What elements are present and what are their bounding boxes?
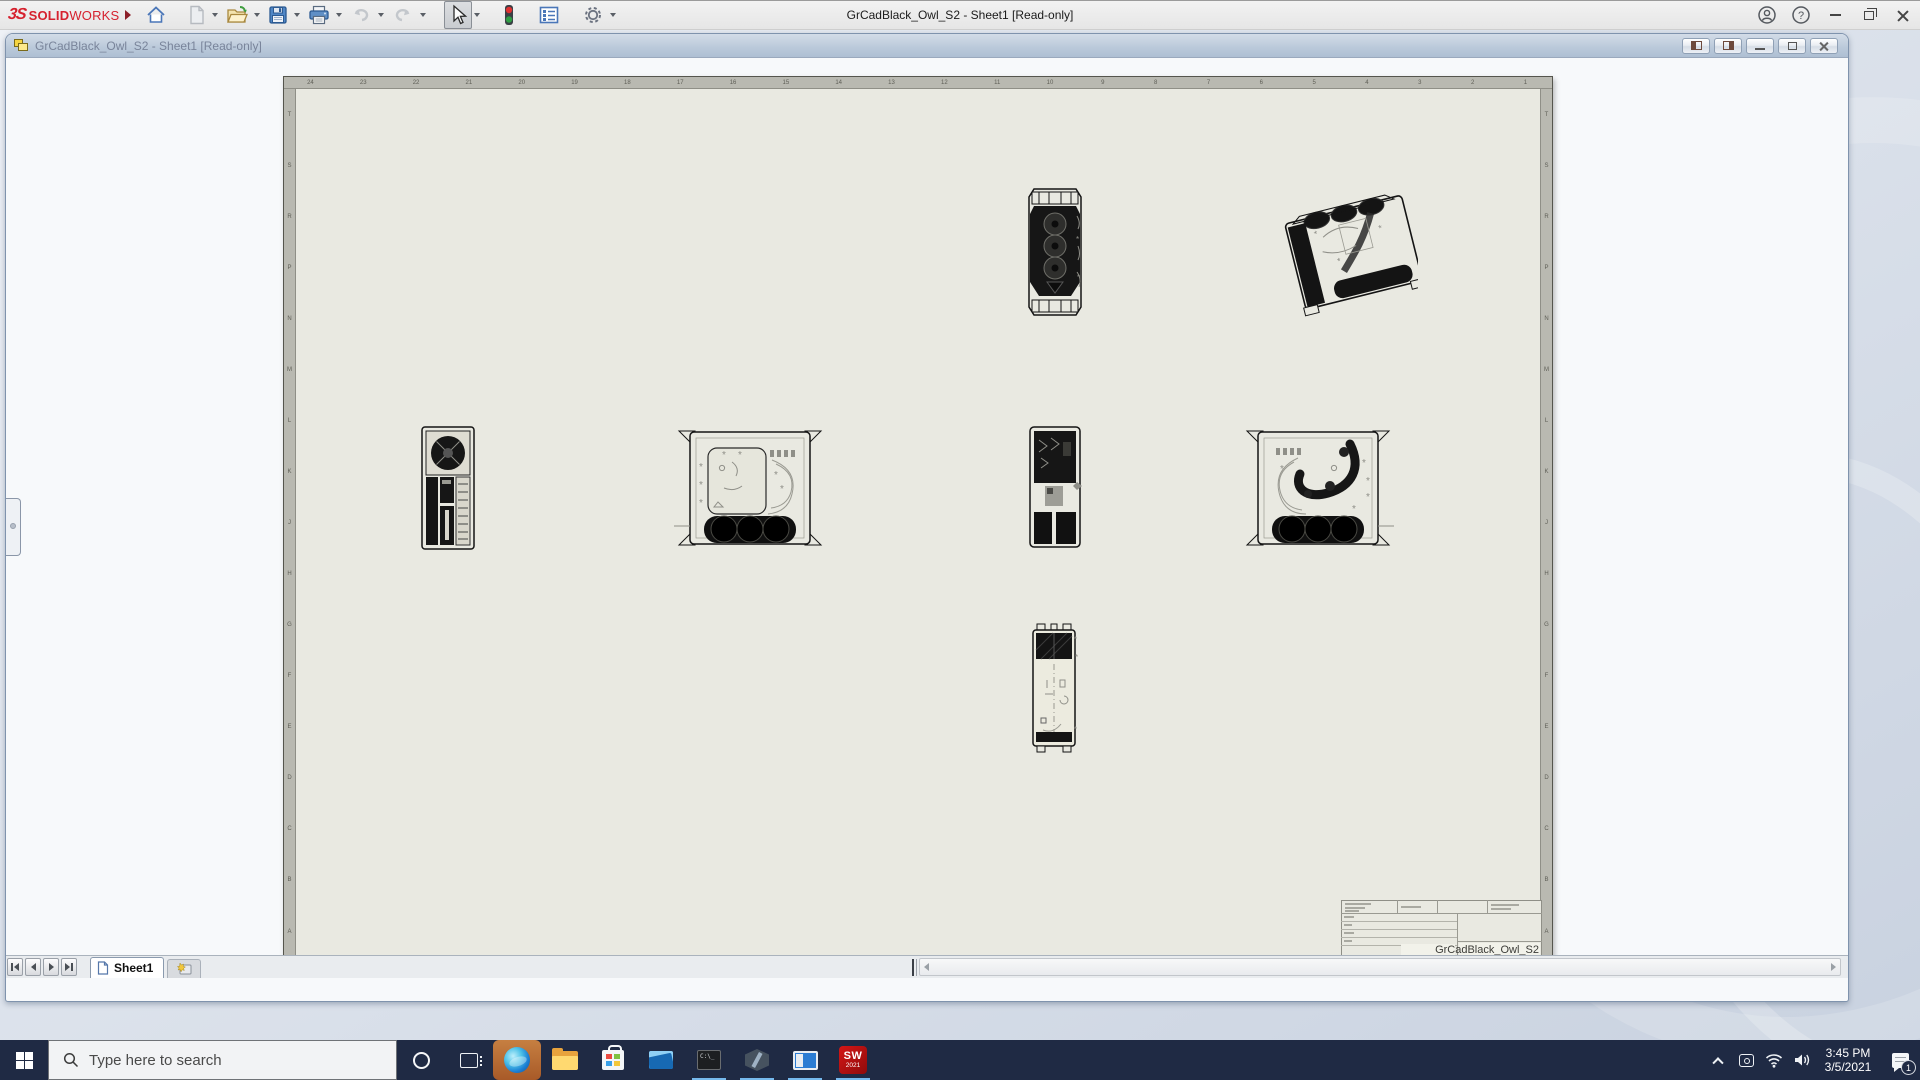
zone-label: 21 [442, 77, 495, 88]
handle-dot-icon [10, 523, 16, 529]
zone-label: L [284, 395, 295, 446]
zone-rows-left: TSRPNMLKJHGFEDCBA [284, 89, 296, 957]
svg-text:*: * [1075, 653, 1078, 662]
open-icon [226, 5, 248, 25]
zone-label: 11 [971, 77, 1024, 88]
undo-button[interactable] [346, 2, 376, 28]
zone-label: 3 [1393, 77, 1446, 88]
open-dropdown-icon[interactable] [254, 13, 260, 17]
sheet-nav-prev-button[interactable] [25, 958, 41, 976]
traffic-light-icon [502, 3, 516, 27]
drawing-view-side-right[interactable]: * * * * * [1242, 422, 1394, 554]
svg-text:*: * [1074, 635, 1077, 644]
properties-list-icon [538, 5, 560, 25]
solidworks-icon: SW 2021 [839, 1046, 867, 1074]
file-explorer-button[interactable] [541, 1040, 589, 1080]
doc-close-icon [1819, 41, 1829, 51]
sheet-icon [97, 961, 109, 975]
pane-right-icon [1723, 41, 1734, 50]
display-app-icon [793, 1051, 818, 1070]
wifi-button[interactable] [1760, 1040, 1788, 1080]
redo-dropdown-icon[interactable] [420, 13, 426, 17]
document-window: GrCadBlack_Owl_S2 - Sheet1 [Read-only] 2… [5, 33, 1849, 1002]
sw-year: 2021 [846, 1062, 860, 1069]
sheet-nav-next-button[interactable] [43, 958, 59, 976]
start-button[interactable] [0, 1040, 48, 1080]
zone-label: 18 [601, 77, 654, 88]
folder-icon [552, 1051, 578, 1070]
zone-label: 23 [337, 77, 390, 88]
print-button[interactable] [304, 2, 334, 28]
undo-dropdown-icon[interactable] [378, 13, 384, 17]
print-icon [308, 5, 330, 25]
logo-light: WORKS [69, 8, 119, 23]
svg-text:*: * [780, 484, 784, 495]
task-view-button[interactable] [445, 1040, 493, 1080]
select-dropdown-icon[interactable] [474, 13, 480, 17]
svg-text:*: * [1074, 725, 1077, 734]
zone-label: H [284, 549, 295, 600]
sheet-tab-bar: Sheet1 [6, 955, 1848, 978]
drawing-view-isometric[interactable]: * * * [1284, 159, 1418, 349]
redo-icon [392, 5, 414, 25]
svg-text:*: * [699, 480, 703, 491]
help-button[interactable]: ? [1784, 1, 1818, 29]
zone-label: K [284, 446, 295, 497]
user-icon [1757, 5, 1777, 25]
drawing-document-icon [14, 39, 29, 52]
zone-label: S [284, 140, 295, 191]
zone-label: 14 [812, 77, 865, 88]
pane-right-button[interactable] [1714, 38, 1742, 54]
close-icon [1897, 9, 1909, 21]
svg-text:*: * [1352, 504, 1356, 515]
zone-label: M [284, 344, 295, 395]
tab-sheet1[interactable]: Sheet1 [90, 957, 164, 978]
svg-text:*: * [699, 462, 703, 473]
edge-button[interactable] [493, 1040, 541, 1080]
brand-arrow-icon[interactable] [125, 10, 131, 20]
zone-label: A [284, 906, 295, 957]
print-dropdown-icon[interactable] [336, 13, 342, 17]
svg-text:*: * [774, 470, 778, 481]
sheet-nav-last-button[interactable] [61, 958, 77, 976]
hexagon-app-button[interactable] [733, 1040, 781, 1080]
zone-label: L [1541, 395, 1552, 446]
performance-status-button[interactable] [498, 2, 520, 28]
zone-label: C [1541, 804, 1552, 855]
zone-label: N [284, 293, 295, 344]
cortana-button[interactable] [397, 1040, 445, 1080]
zone-label: G [1541, 600, 1552, 651]
svg-text:*: * [1366, 492, 1370, 503]
store-icon [602, 1050, 624, 1070]
zone-label: 13 [865, 77, 918, 88]
volume-icon [1793, 1052, 1811, 1068]
terminal-icon: C:\_ [697, 1050, 721, 1070]
zone-label: 15 [759, 77, 812, 88]
drawing-view-front-internal[interactable] [1027, 424, 1083, 550]
zone-label: E [1541, 702, 1552, 753]
scroll-right-icon[interactable] [1831, 963, 1836, 971]
svg-text:*: * [1366, 476, 1370, 487]
zone-label: P [1541, 242, 1552, 293]
zone-label: B [1541, 855, 1552, 906]
zone-label: 7 [1182, 77, 1235, 88]
zone-label: F [1541, 651, 1552, 702]
minimize-button[interactable] [1818, 1, 1852, 29]
zone-label: D [284, 753, 295, 804]
zone-label: J [1541, 498, 1552, 549]
save-icon [268, 5, 288, 25]
zone-label: 2 [1446, 77, 1499, 88]
screen: 3S SOLID WORKS [0, 0, 1920, 1080]
svg-text:*: * [1362, 458, 1366, 469]
solidworks-taskbar-button[interactable]: SW 2021 [829, 1040, 877, 1080]
solidworks-logo: 3S SOLID WORKS [8, 6, 128, 24]
store-button[interactable] [589, 1040, 637, 1080]
drawing-view-top[interactable]: * * * [1027, 620, 1081, 756]
zone-label: 8 [1129, 77, 1182, 88]
terminal-button[interactable]: C:\_ [685, 1040, 733, 1080]
zone-label: S [1541, 140, 1552, 191]
zone-label: 17 [654, 77, 707, 88]
save-dropdown-icon[interactable] [294, 13, 300, 17]
title-block: GrCadBlack_Owl_S2 [1341, 900, 1542, 957]
pane-left-icon [1691, 41, 1702, 50]
mail-button[interactable] [637, 1040, 685, 1080]
search-icon [63, 1052, 79, 1068]
open-button[interactable] [222, 2, 252, 28]
select-tool-button[interactable] [444, 1, 472, 29]
restore-icon [1864, 11, 1874, 20]
properties-button[interactable] [534, 2, 564, 28]
clock-date: 3/5/2021 [1816, 1060, 1880, 1074]
zone-label: A [1541, 906, 1552, 957]
options-dropdown-icon[interactable] [610, 13, 616, 17]
zone-columns-top: 242322212019181716151413121110987654321 [284, 77, 1552, 89]
chevron-up-icon [1712, 1057, 1723, 1068]
sheet-nav-first-button[interactable] [7, 958, 23, 976]
doc-minimize-icon [1755, 48, 1765, 50]
svg-text:*: * [1280, 464, 1284, 475]
doc-minimize-button[interactable] [1746, 38, 1774, 54]
task-view-icon [460, 1053, 478, 1068]
collapsed-panel-handle[interactable] [6, 498, 21, 556]
zone-label: H [1541, 549, 1552, 600]
zone-label: 4 [1341, 77, 1394, 88]
pane-left-button[interactable] [1682, 38, 1710, 54]
zone-label: 24 [284, 77, 337, 88]
new-document-button[interactable] [184, 2, 210, 28]
edge-icon [504, 1047, 530, 1073]
help-icon: ? [1791, 5, 1811, 25]
zone-label: K [1541, 446, 1552, 497]
minimize-icon [1830, 14, 1841, 16]
zone-label: F [284, 651, 295, 702]
zone-label: T [284, 89, 295, 140]
action-center-button[interactable]: 1 [1880, 1040, 1920, 1080]
zone-label: J [284, 498, 295, 549]
sw-label: SW [844, 1051, 863, 1062]
zone-label: 9 [1076, 77, 1129, 88]
document-titlebar: GrCadBlack_Owl_S2 - Sheet1 [Read-only] [6, 34, 1848, 58]
zone-label: 19 [548, 77, 601, 88]
zone-label: 1 [1499, 77, 1552, 88]
taskbar: C:\_ SW 2021 3:45 PM [0, 1040, 1920, 1080]
redo-button[interactable] [388, 2, 418, 28]
clock-time: 3:45 PM [1816, 1046, 1880, 1060]
zone-label: M [1541, 344, 1552, 395]
tray-device-button[interactable] [1732, 1040, 1760, 1080]
document-title: GrCadBlack_Owl_S2 - Sheet1 [Read-only] [35, 39, 262, 53]
logo-mark: 3S [7, 6, 27, 24]
svg-text:*: * [738, 450, 742, 461]
options-button[interactable] [578, 2, 608, 28]
zone-label: D [1541, 753, 1552, 804]
windows-icon [16, 1052, 33, 1069]
doc-close-button[interactable] [1810, 38, 1838, 54]
app-titlebar: 3S SOLID WORKS [0, 0, 1920, 30]
restore-button[interactable] [1852, 1, 1886, 29]
drawing-canvas: 242322212019181716151413121110987654321 … [6, 58, 1848, 978]
zone-label: G [284, 600, 295, 651]
drawing-view-front[interactable]: * * [1026, 184, 1084, 320]
zone-rows-right: TSRPNMLKJHGFEDCBA [1540, 89, 1552, 957]
save-button[interactable] [264, 2, 292, 28]
mail-icon [649, 1051, 673, 1069]
taskbar-clock[interactable]: 3:45 PM 3/5/2021 [1816, 1046, 1880, 1074]
close-button[interactable] [1886, 1, 1920, 29]
zone-label: 5 [1288, 77, 1341, 88]
undo-icon [350, 5, 372, 25]
drawing-view-side-left[interactable]: * * * * * * * [674, 422, 826, 554]
hexagon-app-icon [745, 1049, 769, 1071]
doc-restore-icon [1788, 42, 1797, 50]
taskbar-search[interactable] [48, 1040, 397, 1080]
zone-label: E [284, 702, 295, 753]
horizontal-scrollbar[interactable] [919, 958, 1841, 976]
display-app-button[interactable] [781, 1040, 829, 1080]
svg-text:*: * [699, 498, 703, 509]
new-document-icon [188, 5, 206, 25]
select-cursor-icon [447, 3, 469, 27]
wifi-icon [1765, 1053, 1783, 1068]
tab-scroll-splitter[interactable] [912, 959, 917, 976]
drawing-sheet: 242322212019181716151413121110987654321 … [283, 76, 1553, 970]
svg-text:*: * [1076, 235, 1079, 244]
svg-text:*: * [1077, 273, 1080, 282]
new-dropdown-icon[interactable] [212, 13, 218, 17]
add-sheet-icon [176, 962, 192, 976]
zone-label: T [1541, 89, 1552, 140]
scroll-left-icon[interactable] [924, 963, 929, 971]
zone-label: R [284, 191, 295, 242]
svg-text:*: * [722, 450, 726, 461]
zone-label: P [284, 242, 295, 293]
drawing-view-rear[interactable] [419, 424, 477, 552]
device-icon [1739, 1054, 1754, 1067]
tab-sheet1-label: Sheet1 [114, 961, 153, 975]
home-icon [146, 5, 166, 25]
doc-restore-button[interactable] [1778, 38, 1806, 54]
account-button[interactable] [1750, 1, 1784, 29]
tray-expand-button[interactable] [1704, 1040, 1732, 1080]
notification-badge: 1 [1901, 1060, 1916, 1075]
zone-label: 10 [1024, 77, 1077, 88]
zone-label: B [284, 855, 295, 906]
svg-text:?: ? [1798, 10, 1804, 22]
gear-icon [582, 4, 604, 26]
zone-label: N [1541, 293, 1552, 344]
zone-label: C [284, 804, 295, 855]
add-sheet-tab[interactable] [167, 959, 201, 978]
zone-label: 6 [1235, 77, 1288, 88]
logo-bold: SOLID [29, 8, 70, 23]
zone-label: R [1541, 191, 1552, 242]
volume-button[interactable] [1788, 1040, 1816, 1080]
zone-label: 12 [918, 77, 971, 88]
cortana-icon [413, 1052, 430, 1069]
zone-label: 22 [390, 77, 443, 88]
zone-label: 16 [707, 77, 760, 88]
home-button[interactable] [142, 2, 170, 28]
search-input[interactable] [89, 1052, 349, 1069]
zone-label: 20 [495, 77, 548, 88]
